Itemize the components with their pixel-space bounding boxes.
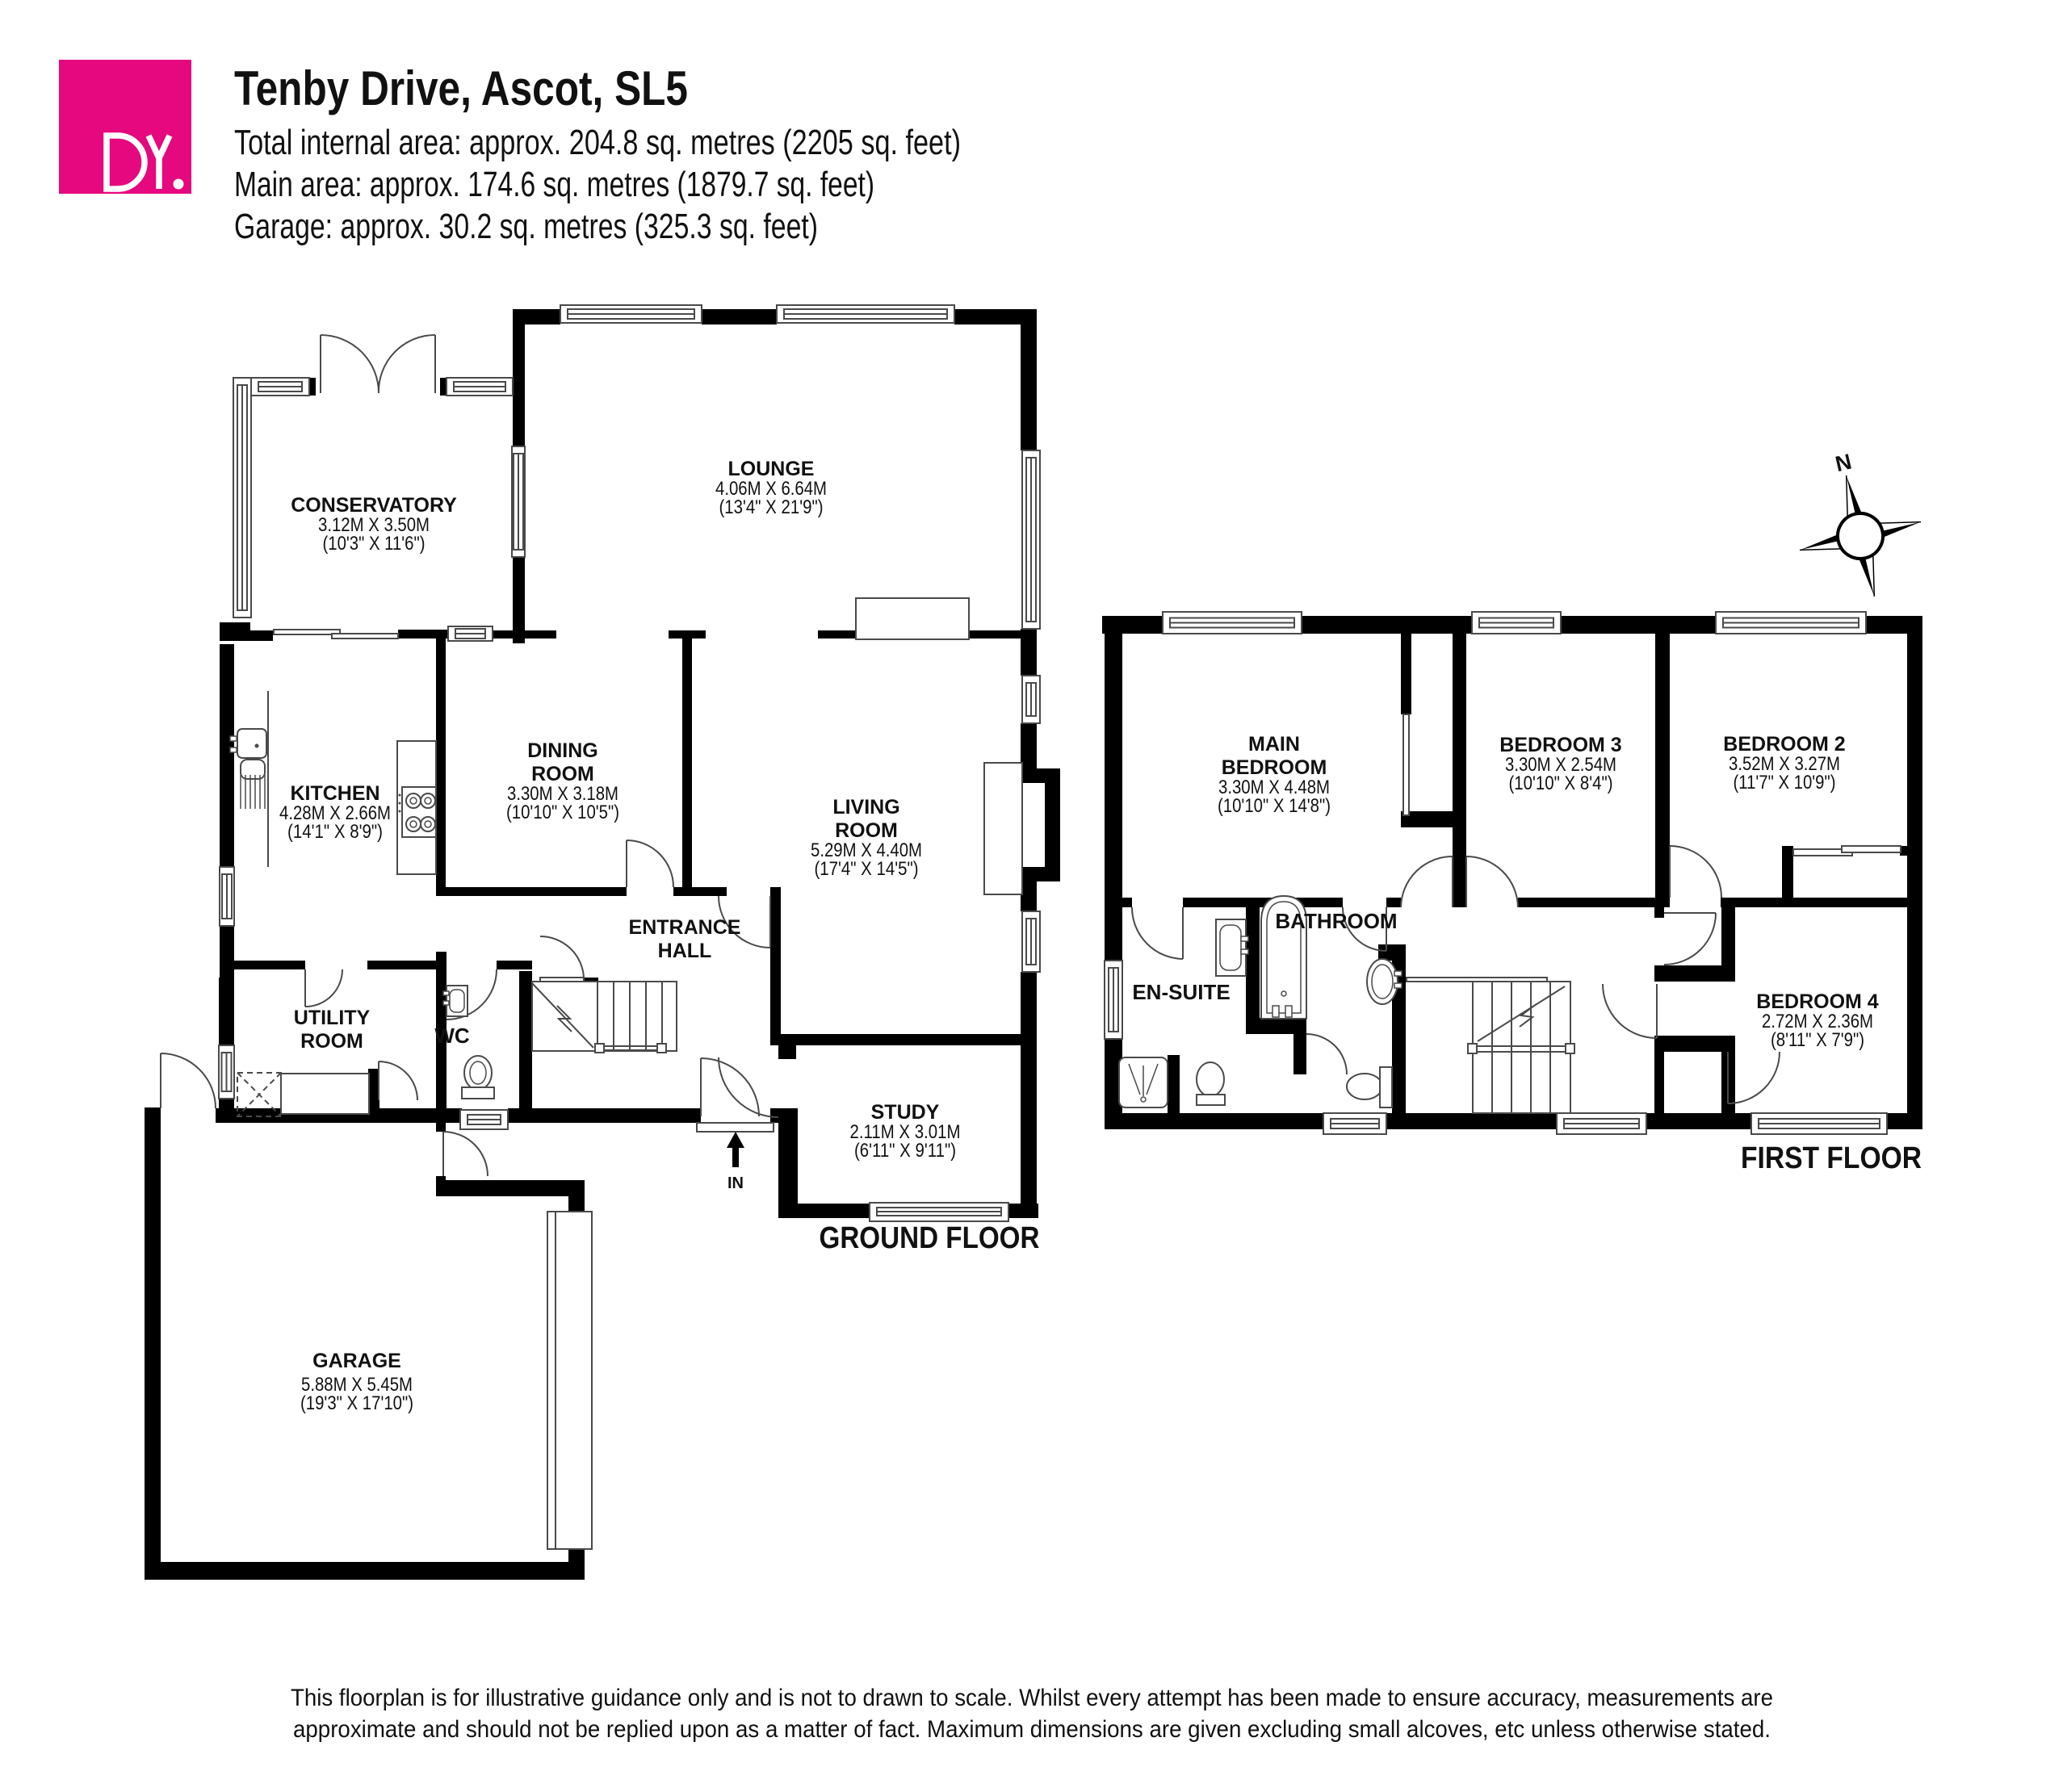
svg-text:BEDROOM 4: BEDROOM 4 [1756, 990, 1879, 1013]
svg-text:UTILITY: UTILITY [294, 1007, 371, 1029]
svg-text:Garage: approx. 30.2 sq. metre: Garage: approx. 30.2 sq. metres (325.3 s… [234, 207, 818, 246]
svg-text:BATHROOM: BATHROOM [1275, 909, 1397, 933]
svg-text:ROOM: ROOM [835, 819, 898, 842]
svg-text:(14'1" X 8'9"): (14'1" X 8'9") [287, 821, 383, 843]
svg-text:Main area: approx. 174.6 sq. m: Main area: approx. 174.6 sq. metres (187… [234, 165, 874, 204]
svg-text:LOUNGE: LOUNGE [728, 458, 815, 480]
svg-text:(6'11" X 9'11"): (6'11" X 9'11") [854, 1140, 956, 1162]
svg-text:IN: IN [727, 1174, 744, 1192]
svg-text:(8'11" X 7'9"): (8'11" X 7'9") [1771, 1029, 1864, 1051]
svg-text:BEDROOM: BEDROOM [1222, 756, 1327, 779]
svg-text:ROOM: ROOM [300, 1030, 363, 1053]
svg-text:(17'4" X 14'5"): (17'4" X 14'5") [815, 858, 919, 880]
svg-text:HALL: HALL [658, 940, 712, 962]
svg-text:BEDROOM 2: BEDROOM 2 [1723, 733, 1845, 756]
svg-text:(10'10" X 8'4"): (10'10" X 8'4") [1509, 772, 1613, 794]
svg-text:Tenby Drive, Ascot, SL5: Tenby Drive, Ascot, SL5 [234, 61, 688, 115]
svg-text:Total internal area: approx. 2: Total internal area: approx. 204.8 sq. m… [234, 123, 961, 162]
svg-text:LIVING: LIVING [832, 796, 899, 819]
svg-text:ROOM: ROOM [531, 763, 594, 785]
svg-text:(19'3" X 17'10"): (19'3" X 17'10") [300, 1392, 413, 1414]
svg-text:(10'3" X 11'6"): (10'3" X 11'6") [323, 533, 426, 555]
svg-text:GROUND FLOOR: GROUND FLOOR [820, 1221, 1040, 1255]
svg-text:(10'10" X 10'5"): (10'10" X 10'5") [506, 802, 619, 823]
svg-text:(13'4" X 21'9"): (13'4" X 21'9") [719, 496, 824, 518]
svg-text:(11'7" X 10'9"): (11'7" X 10'9") [1734, 772, 1836, 793]
svg-text:WC: WC [434, 1024, 470, 1048]
svg-text:MAIN: MAIN [1248, 733, 1300, 756]
svg-text:DINING: DINING [527, 739, 598, 762]
svg-text:CONSERVATORY: CONSERVATORY [291, 494, 457, 517]
svg-text:ENTRANCE: ENTRANCE [629, 916, 741, 939]
svg-text:STUDY: STUDY [871, 1101, 940, 1124]
svg-text:EN-SUITE: EN-SUITE [1132, 980, 1230, 1004]
svg-text:(10'10" X 14'8"): (10'10" X 14'8") [1218, 795, 1331, 817]
svg-text:This floorplan is for illustra: This floorplan is for illustrative guida… [291, 1685, 1773, 1711]
svg-text:GARAGE: GARAGE [312, 1350, 401, 1372]
svg-text:approximate and should not be: approximate and should not be replied up… [293, 1716, 1771, 1743]
svg-text:FIRST FLOOR: FIRST FLOOR [1741, 1141, 1922, 1175]
svg-text:BEDROOM 3: BEDROOM 3 [1499, 734, 1621, 756]
svg-text:KITCHEN: KITCHEN [290, 782, 379, 805]
